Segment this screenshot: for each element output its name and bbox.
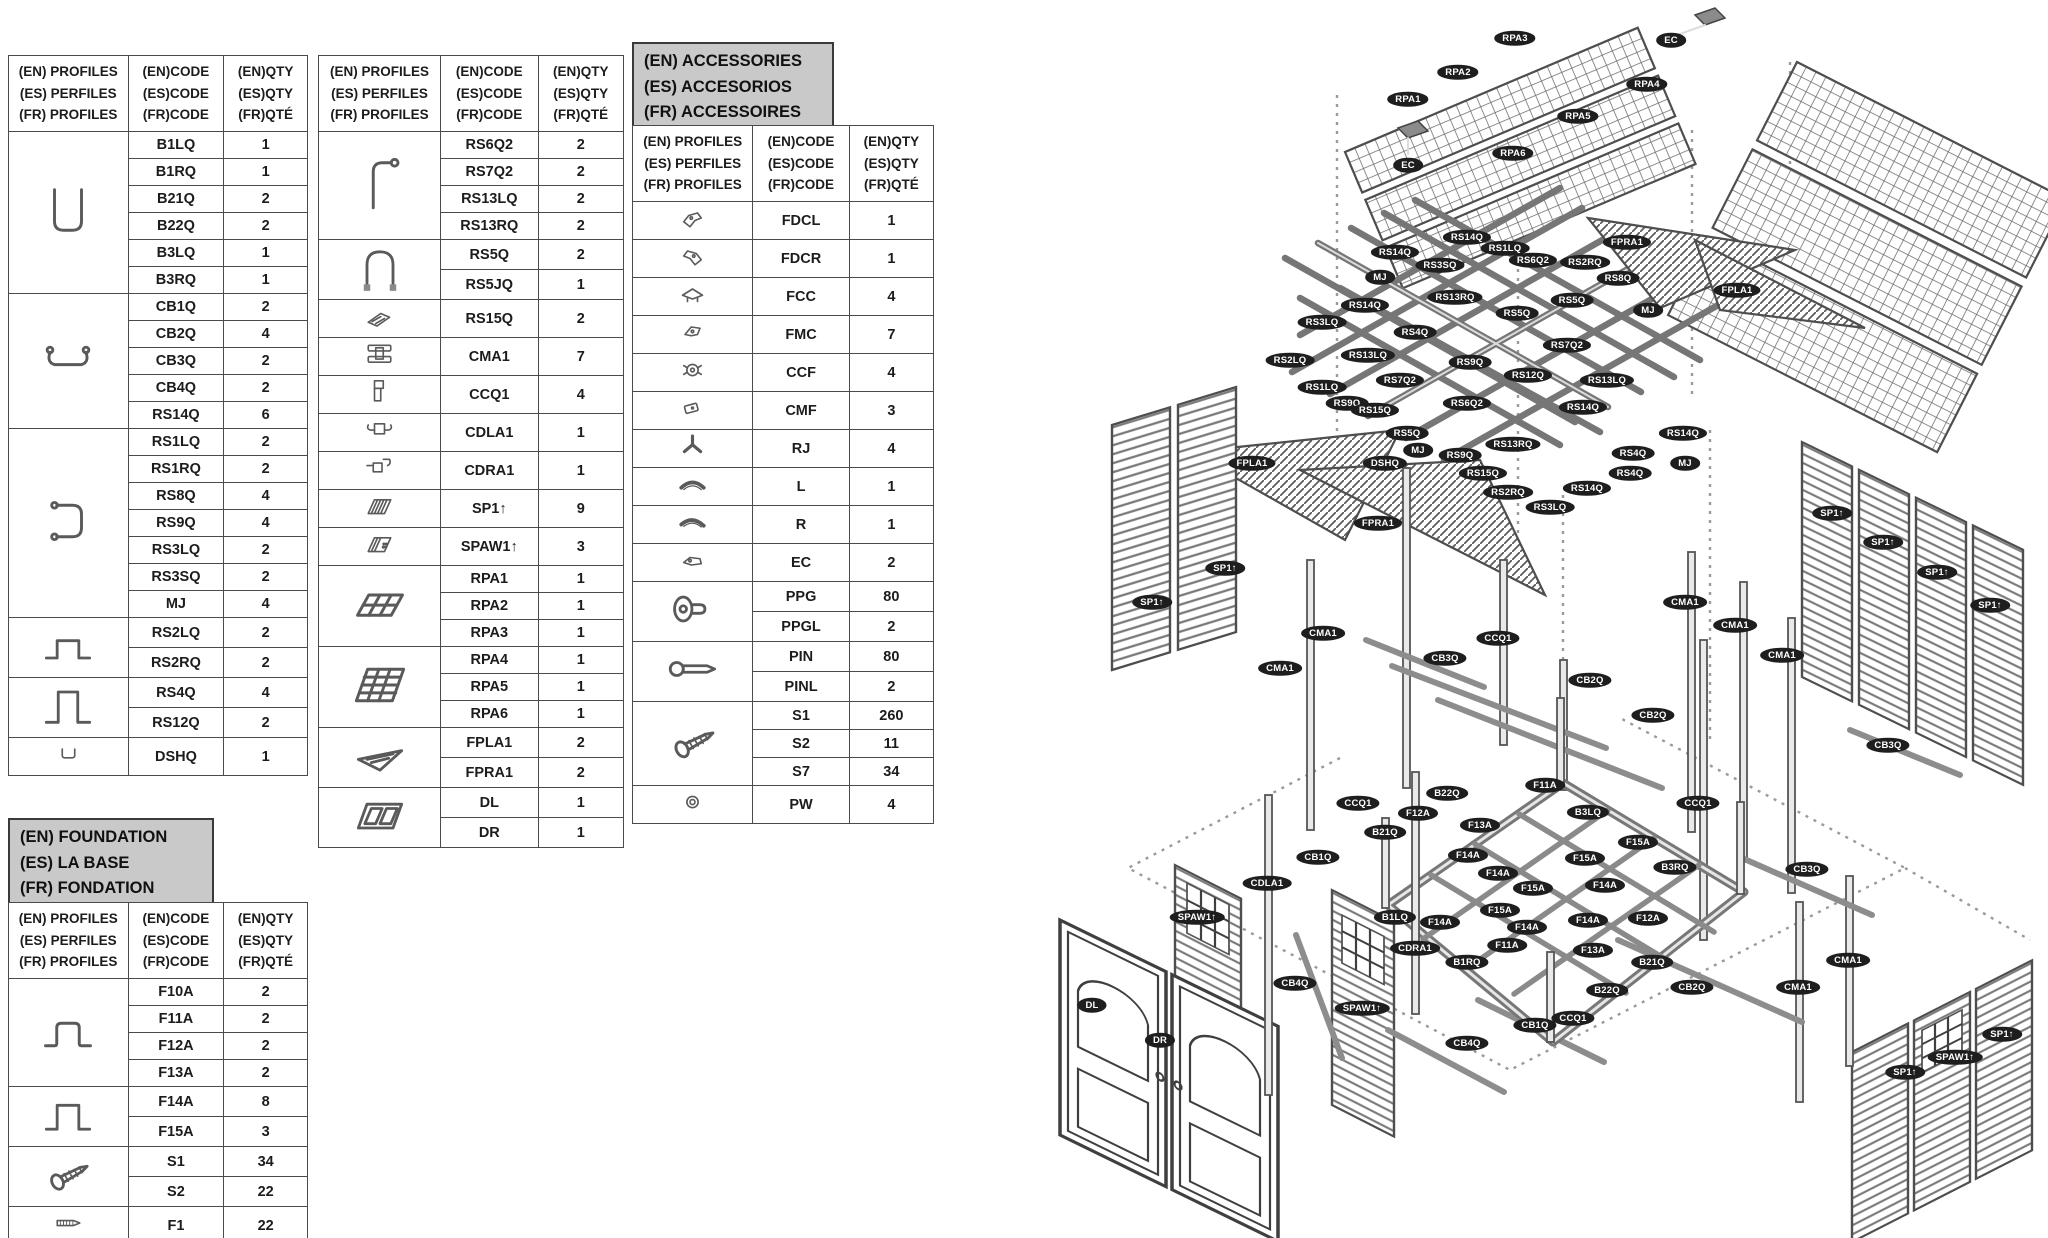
part-label-RPA2: RPA2 [1437, 65, 1478, 80]
part-label-F12A: F12A [1398, 806, 1438, 821]
part-label-CCQ1: CCQ1 [1551, 1011, 1594, 1026]
part-label-B22Q: B22Q [1426, 786, 1468, 801]
part-label-RS3SQ: RS3SQ [1415, 258, 1464, 273]
part-label-F14A: F14A [1585, 878, 1625, 893]
part-label-FPRA1: FPRA1 [1354, 516, 1402, 531]
part-label-B1LQ: B1LQ [1374, 910, 1416, 925]
part-label-RS14Q: RS14Q [1341, 298, 1389, 313]
part-label-CB2Q: CB2Q [1568, 673, 1611, 688]
part-label-RS3LQ: RS3LQ [1298, 315, 1347, 330]
part-label-B1RQ: B1RQ [1445, 955, 1488, 970]
part-label-RS2RQ: RS2RQ [1483, 485, 1533, 500]
part-label-F14A: F14A [1478, 866, 1518, 881]
part-label-SPAW1: SPAW1↑ [1928, 1050, 1983, 1065]
part-label-CCQ1: CCQ1 [1676, 796, 1719, 811]
part-label-RS14Q: RS14Q [1371, 245, 1419, 260]
part-label-SP1: SP1↑ [1812, 506, 1852, 521]
part-label-RS13RQ: RS13RQ [1427, 290, 1482, 305]
part-label-FPLA1: FPLA1 [1228, 456, 1275, 471]
part-label-RS1LQ: RS1LQ [1298, 380, 1347, 395]
part-label-RS15Q: RS15Q [1351, 403, 1399, 418]
part-label-SP1: SP1↑ [1970, 598, 2010, 613]
part-label-RS14Q: RS14Q [1563, 481, 1611, 496]
door-right [1172, 975, 1278, 1238]
part-label-RS2LQ: RS2LQ [1266, 353, 1315, 368]
part-label-CB1Q: CB1Q [1513, 1018, 1556, 1033]
part-label-SPAW1: SPAW1↑ [1170, 910, 1225, 925]
part-label-SP1: SP1↑ [1132, 595, 1172, 610]
part-label-RS2RQ: RS2RQ [1560, 255, 1610, 270]
part-label-MJ: MJ [1403, 443, 1433, 458]
part-label-RPA5: RPA5 [1557, 109, 1598, 124]
part-label-RS8Q: RS8Q [1597, 271, 1640, 286]
part-label-RPA3: RPA3 [1494, 31, 1535, 46]
part-label-FPRA1: FPRA1 [1603, 235, 1651, 250]
part-label-CMA1: CMA1 [1826, 953, 1870, 968]
part-label-RS6Q2: RS6Q2 [1509, 253, 1557, 268]
part-label-RS9Q: RS9Q [1449, 355, 1492, 370]
part-label-RS4Q: RS4Q [1612, 446, 1655, 461]
part-label-MJ: MJ [1365, 270, 1395, 285]
part-label-B3LQ: B3LQ [1567, 805, 1609, 820]
part-label-F14A: F14A [1420, 915, 1460, 930]
part-label-RS12Q: RS12Q [1504, 368, 1552, 383]
part-label-B21Q: B21Q [1364, 825, 1406, 840]
part-label-CMA1: CMA1 [1760, 648, 1804, 663]
part-label-RPA4: RPA4 [1626, 77, 1667, 92]
part-label-RS6Q2: RS6Q2 [1443, 396, 1491, 411]
part-label-DSHQ: DSHQ [1363, 456, 1407, 471]
part-label-SPAW1: SPAW1↑ [1335, 1001, 1390, 1016]
part-label-RS14Q: RS14Q [1659, 426, 1707, 441]
part-label-RS14Q: RS14Q [1443, 230, 1491, 245]
part-label-RS7Q2: RS7Q2 [1543, 338, 1591, 353]
part-label-F14A: F14A [1448, 848, 1488, 863]
part-label-F14A: F14A [1568, 913, 1608, 928]
part-label-B21Q: B21Q [1631, 955, 1673, 970]
part-label-CMA1: CMA1 [1258, 661, 1302, 676]
part-label-RS14Q: RS14Q [1559, 400, 1607, 415]
part-label-SP1: SP1↑ [1885, 1065, 1925, 1080]
part-label-CDRA1: CDRA1 [1390, 941, 1440, 956]
part-label-MJ: MJ [1670, 456, 1700, 471]
part-label-CDLA1: CDLA1 [1243, 876, 1292, 891]
part-label-SP1: SP1↑ [1863, 535, 1903, 550]
part-label-F13A: F13A [1460, 818, 1500, 833]
gable-panels [1190, 218, 1865, 595]
part-label-RS4Q: RS4Q [1609, 466, 1652, 481]
part-label-F12A: F12A [1628, 911, 1668, 926]
part-label-RS5Q: RS5Q [1496, 306, 1539, 321]
part-label-RS15Q: RS15Q [1459, 466, 1507, 481]
part-label-F15A: F15A [1480, 903, 1520, 918]
part-label-B3RQ: B3RQ [1653, 860, 1696, 875]
part-label-CB1Q: CB1Q [1296, 850, 1339, 865]
part-label-CMA1: CMA1 [1776, 980, 1820, 995]
part-label-CB3Q: CB3Q [1785, 862, 1828, 877]
part-label-RS13LQ: RS13LQ [1341, 348, 1395, 363]
left-wall-panels [1112, 387, 1236, 670]
part-label-MJ: MJ [1633, 303, 1663, 318]
part-label-RS4Q: RS4Q [1394, 325, 1437, 340]
assembly-instruction-page: (EN) PROFILES (ES) PERFILES (FR) PROFILE… [0, 0, 2048, 1238]
corner-wall-panels [1852, 960, 2032, 1238]
door-left [1060, 920, 1166, 1187]
part-label-F15A: F15A [1618, 835, 1658, 850]
part-label-SP1: SP1↑ [1205, 561, 1245, 576]
part-label-F15A: F15A [1565, 851, 1605, 866]
part-label-CB2Q: CB2Q [1670, 980, 1713, 995]
part-label-DR: DR [1145, 1033, 1175, 1048]
part-label-F15A: F15A [1513, 881, 1553, 896]
part-label-F11A: F11A [1487, 938, 1527, 953]
right-wall-panels [1802, 442, 2023, 785]
part-label-CB4Q: CB4Q [1273, 976, 1316, 991]
part-label-EC: EC [1656, 33, 1686, 48]
part-label-RS13RQ: RS13RQ [1485, 437, 1540, 452]
part-label-CB3Q: CB3Q [1423, 651, 1466, 666]
part-label-CB4Q: CB4Q [1445, 1036, 1488, 1051]
door-leaves [1060, 920, 1278, 1238]
part-label-CB3Q: CB3Q [1866, 738, 1909, 753]
part-label-RPA6: RPA6 [1492, 146, 1533, 161]
part-label-SP1: SP1↑ [1917, 565, 1957, 580]
wall-rails [1296, 640, 1960, 1092]
part-label-RS5Q: RS5Q [1386, 426, 1429, 441]
part-label-CMA1: CMA1 [1301, 626, 1345, 641]
part-label-F13A: F13A [1573, 943, 1613, 958]
part-label-CMA1: CMA1 [1663, 595, 1707, 610]
part-label-RS9Q: RS9Q [1439, 448, 1482, 463]
part-label-CCQ1: CCQ1 [1476, 631, 1519, 646]
part-label-DL: DL [1077, 998, 1106, 1013]
part-label-RS3LQ: RS3LQ [1526, 500, 1575, 515]
part-label-SP1: SP1↑ [1982, 1027, 2022, 1042]
part-label-RS7Q2: RS7Q2 [1376, 373, 1424, 388]
exploded-shed-diagram: ECRPA3RPA2RPA1RPA4RPA5RPA6ECFPRA1FPLA1MJ… [0, 0, 2048, 1238]
part-label-RS13LQ: RS13LQ [1580, 373, 1634, 388]
part-label-F11A: F11A [1525, 778, 1565, 793]
part-label-FPLA1: FPLA1 [1713, 283, 1760, 298]
part-label-RPA1: RPA1 [1387, 92, 1428, 107]
part-label-B22Q: B22Q [1586, 983, 1628, 998]
part-label-CB2Q: CB2Q [1631, 708, 1674, 723]
part-label-CCQ1: CCQ1 [1336, 796, 1379, 811]
part-label-CMA1: CMA1 [1713, 618, 1757, 633]
part-label-F14A: F14A [1507, 920, 1547, 935]
part-label-EC: EC [1393, 158, 1423, 173]
part-label-RS5Q: RS5Q [1551, 293, 1594, 308]
